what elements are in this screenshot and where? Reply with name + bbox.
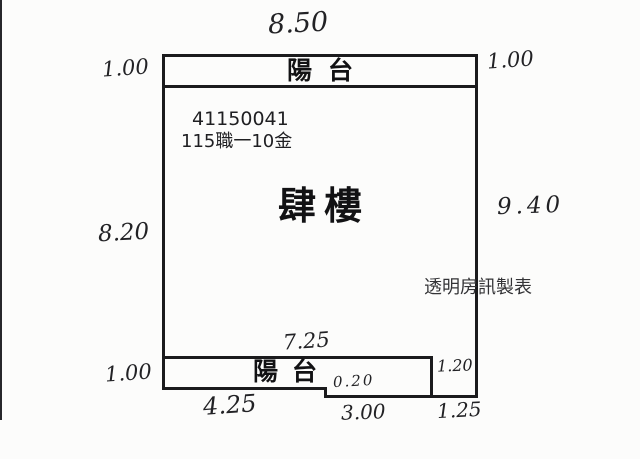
dim-bottom-balcony-left: 1.00 <box>104 361 152 385</box>
balcony-top-divider-line <box>162 85 478 88</box>
page-edge-line <box>0 0 2 420</box>
dim-bottom-segment-2: 3.00 <box>341 401 386 423</box>
dim-inner-width: 7.25 <box>282 329 330 353</box>
watermark: 透明房訊製表 <box>424 279 532 297</box>
dim-top-width: 8.50 <box>267 8 328 38</box>
wall-right <box>475 54 478 398</box>
floor-label: 肆樓 <box>162 187 478 225</box>
dim-bottom-segment-1: 4.25 <box>202 391 257 419</box>
dim-top-balcony-right: 1.00 <box>486 48 534 72</box>
unit-code: 115職一10金 <box>181 133 292 151</box>
balcony-bottom-label: 陽台 <box>150 359 420 384</box>
balcony-bottom-right-edge <box>430 356 433 398</box>
unit-number: 41150041 <box>192 110 289 129</box>
dim-top-balcony-left: 1.00 <box>101 56 149 80</box>
floor-plan-scan: 8.50 1.00 1.00 8.20 9.40 7.25 0.20 1.00 … <box>0 0 640 459</box>
dim-right-height: 9.40 <box>497 194 565 219</box>
dim-left-height: 8.20 <box>97 221 149 247</box>
dim-bottom-segment-3: 1.25 <box>437 399 483 421</box>
balcony-top-label: 陽台 <box>162 58 478 83</box>
dim-bottom-balcony-right: 1.20 <box>437 357 473 374</box>
